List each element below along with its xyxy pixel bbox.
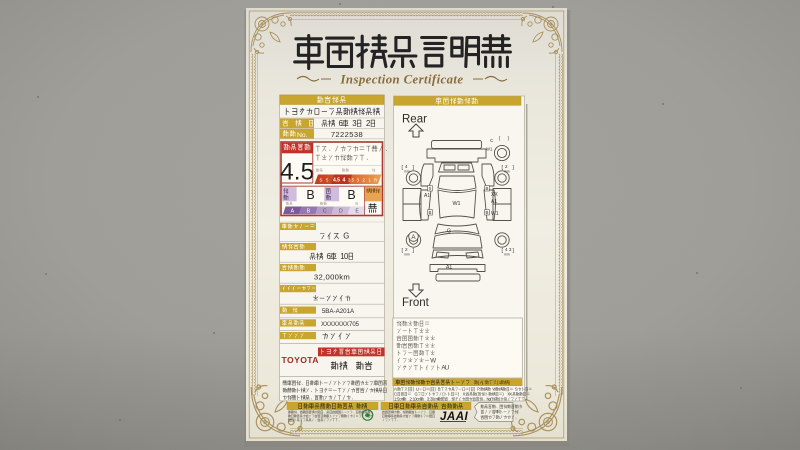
svg-text:Rear: Rear [402, 114, 427, 126]
svg-text:m: m [401, 396, 405, 401]
svg-text:XXXXXXX705: XXXXXXX705 [321, 322, 360, 328]
svg-text:S: S [320, 178, 323, 183]
svg-text:Front: Front [402, 297, 430, 309]
svg-text:4.5: 4.5 [280, 159, 314, 186]
svg-text:A1: A1 [424, 193, 430, 199]
svg-text:m: m [418, 396, 422, 401]
svg-text:W: W [430, 357, 436, 364]
svg-text:E: E [355, 208, 359, 214]
svg-text:W1: W1 [491, 211, 499, 217]
svg-text:1: 1 [499, 380, 502, 385]
svg-text:W1: W1 [452, 201, 460, 207]
svg-text:6: 6 [327, 252, 331, 261]
svg-text:mm: mm [404, 169, 410, 173]
svg-text:A1: A1 [491, 199, 497, 205]
svg-text:R: R [374, 178, 377, 183]
svg-text:No.: No. [297, 132, 308, 139]
svg-text:C: C [323, 208, 327, 214]
svg-text:4: 4 [343, 178, 346, 184]
svg-text:XX: XX [491, 192, 498, 198]
svg-text:mm: mm [504, 252, 510, 256]
svg-text::: : [494, 387, 495, 392]
svg-text:B: B [306, 188, 314, 202]
svg-text:m: m [436, 396, 440, 401]
svg-text:3: 3 [352, 119, 356, 128]
svg-text:B: B [486, 186, 489, 191]
svg-text:]: ] [508, 136, 509, 141]
svg-text:A: A [291, 208, 295, 214]
svg-text:4 3: 4 3 [505, 247, 512, 252]
svg-text::: : [440, 387, 441, 392]
svg-text::: : [511, 392, 512, 397]
svg-text:B: B [486, 210, 489, 215]
svg-text:TOYOTA: TOYOTA [282, 355, 319, 365]
svg-text:4: 4 [405, 164, 408, 169]
svg-text:2: 2 [366, 119, 370, 128]
svg-text:2: 2 [505, 164, 508, 169]
svg-text:5BA-A201A: 5BA-A201A [322, 308, 355, 315]
svg-text:4.5: 4.5 [333, 178, 340, 184]
svg-text:6: 6 [339, 119, 343, 128]
svg-text::: : [465, 392, 466, 397]
svg-text::: : [418, 387, 419, 392]
svg-text:G: G [447, 229, 451, 235]
svg-text:D: D [339, 208, 343, 214]
svg-text:G: G [343, 232, 349, 241]
svg-text:U: U [445, 365, 449, 372]
svg-text:B: B [429, 210, 432, 215]
svg-text:Inspection Certificate: Inspection Certificate [340, 73, 464, 87]
svg-text:32,000km: 32,000km [314, 272, 350, 281]
svg-text:W1: W1 [486, 147, 493, 152]
svg-text::: : [479, 387, 480, 392]
svg-text::: : [517, 387, 518, 392]
svg-text:7222538: 7222538 [331, 130, 363, 139]
svg-text:0: 0 [344, 252, 349, 261]
svg-text:mm: mm [504, 169, 510, 173]
svg-text:3.5: 3.5 [348, 178, 355, 183]
svg-text:B: B [347, 188, 355, 202]
svg-text::: : [484, 380, 485, 385]
svg-text:A1: A1 [446, 265, 452, 271]
svg-text:2: 2 [405, 247, 408, 252]
svg-text:mm: mm [404, 252, 410, 256]
svg-text:B: B [307, 208, 311, 214]
